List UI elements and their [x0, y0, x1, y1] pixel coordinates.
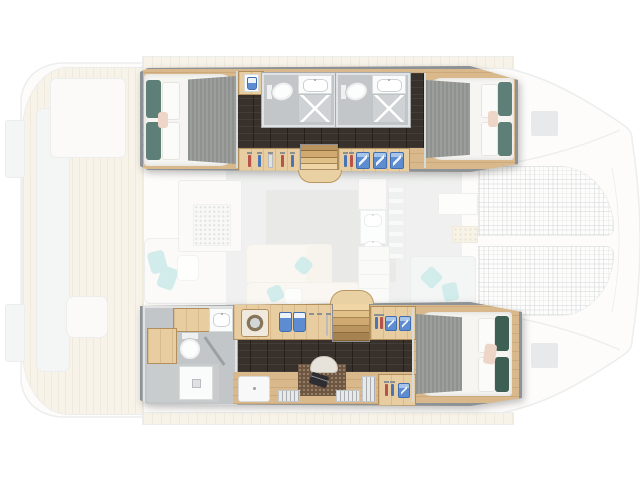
- hanger-icon: [385, 384, 388, 396]
- pillow-blush: [488, 111, 498, 127]
- pillow-green: [495, 316, 509, 351]
- stair-tread: [333, 326, 369, 334]
- towel-icon: [279, 312, 292, 332]
- cockpit-table: [66, 296, 108, 338]
- companionway-stairs-port: [300, 144, 338, 171]
- hanger-icon: [350, 155, 353, 167]
- towel-icon: [247, 77, 257, 90]
- sunpad-pillow-teal: [441, 282, 459, 303]
- storage-bin-icon: [356, 152, 370, 169]
- hanger-icon: [248, 155, 251, 167]
- wardrobe-forward: [370, 306, 416, 340]
- hanger-icon: [380, 317, 383, 329]
- hanger-icon: [344, 155, 347, 167]
- storage-bin-icon: [385, 316, 397, 331]
- bed-runner: [188, 76, 236, 164]
- washbasin: [244, 74, 259, 92]
- catamaran-floorplan: [0, 0, 640, 479]
- hanger-icon: [391, 384, 394, 396]
- shower-icon: [298, 94, 332, 123]
- galley-upper-counter: [358, 178, 388, 210]
- sunpad-pillow-teal: [419, 265, 443, 289]
- shower-room-floor: [147, 364, 219, 402]
- desk-books: [336, 390, 360, 402]
- angled-wall: [204, 336, 226, 366]
- pillow-green: [495, 357, 509, 392]
- shower-tray: [179, 366, 213, 400]
- shower-icon: [372, 94, 406, 123]
- pillow-teal: [498, 122, 512, 156]
- starboard-forward-cabin-bed: [416, 312, 512, 396]
- stair-landing-port: [298, 170, 342, 183]
- bath-basin: [213, 313, 230, 327]
- bath-counter: [209, 308, 233, 332]
- bed-runner: [426, 80, 470, 158]
- stair-tread: [333, 318, 369, 326]
- hanger-icon: [291, 155, 294, 167]
- stair-tread: [333, 311, 369, 319]
- side-deck-starboard: [142, 412, 514, 425]
- bath-top-cabinet: [173, 308, 211, 332]
- cabin-bulkhead: [412, 308, 414, 402]
- toilet-icon: [179, 338, 201, 360]
- wardrobe-hangers: [238, 148, 304, 173]
- companionway-stairs-starboard: [332, 302, 370, 342]
- hanger-icon: [326, 315, 328, 336]
- bed-runner: [416, 314, 462, 394]
- desk-books: [278, 390, 300, 402]
- port-aft-cabin-bed: [144, 74, 236, 166]
- storage-bin-icon: [373, 152, 387, 169]
- bath-basin: [303, 79, 328, 92]
- storage-bin-icon: [399, 316, 411, 331]
- foredeck-hatch: [438, 193, 478, 215]
- towel-icon: [293, 312, 306, 332]
- sink-basin: [364, 214, 382, 227]
- stair-landing-starboard: [330, 290, 374, 304]
- port-forward-cabin-bed: [426, 78, 514, 160]
- starboard-bow-hatch: [531, 343, 558, 368]
- pillow-white: [481, 122, 498, 156]
- wardrobe-aft: [378, 374, 416, 406]
- pillow-teal: [498, 82, 512, 116]
- stair-tread: [333, 333, 369, 341]
- bookshelf: [362, 376, 376, 402]
- starboard-hull-section: [140, 302, 522, 406]
- vanity-cabinet: [147, 328, 177, 364]
- shower-drain: [192, 379, 201, 388]
- port-hull-section: [140, 66, 518, 172]
- owner-bathroom: [143, 306, 237, 406]
- speaker-grille: [193, 204, 231, 246]
- galley-sink: [360, 210, 386, 244]
- windlass-control-panel: [452, 226, 478, 243]
- bath-sink-counter: [372, 75, 406, 94]
- bath-sink-counter: [298, 75, 332, 94]
- washing-machine-icon: [241, 309, 269, 337]
- hanger-icon: [281, 155, 284, 167]
- cockpit-seat: [50, 78, 126, 158]
- toilet-icon: [343, 79, 371, 104]
- port-hull: [140, 66, 518, 172]
- toilet-icon: [269, 79, 297, 104]
- swim-step-starboard: [5, 304, 25, 362]
- hanger-icon: [268, 154, 273, 168]
- laundry-cabinet-strip: [233, 304, 334, 340]
- washbasin-cabinet: [238, 71, 264, 95]
- hanger-icon: [375, 317, 378, 329]
- port-bow-hatch: [531, 111, 558, 136]
- swim-step-port: [5, 120, 25, 178]
- office-washbasin: [238, 376, 270, 402]
- storage-bin-icon: [398, 383, 410, 398]
- lounge-pillow-white: [177, 255, 199, 281]
- hanger-icon: [258, 155, 261, 167]
- wardrobe-shelves: [338, 148, 410, 173]
- storage-bin-icon: [390, 152, 404, 169]
- bathroom-2: [336, 73, 410, 127]
- stair-tread: [333, 303, 369, 311]
- desk-chair: [310, 356, 338, 373]
- bath-basin: [377, 79, 402, 92]
- foredeck-sunpad: [410, 256, 476, 308]
- bathroom-1: [262, 73, 336, 127]
- starboard-hull: [140, 302, 522, 406]
- pillow-blush: [158, 112, 168, 128]
